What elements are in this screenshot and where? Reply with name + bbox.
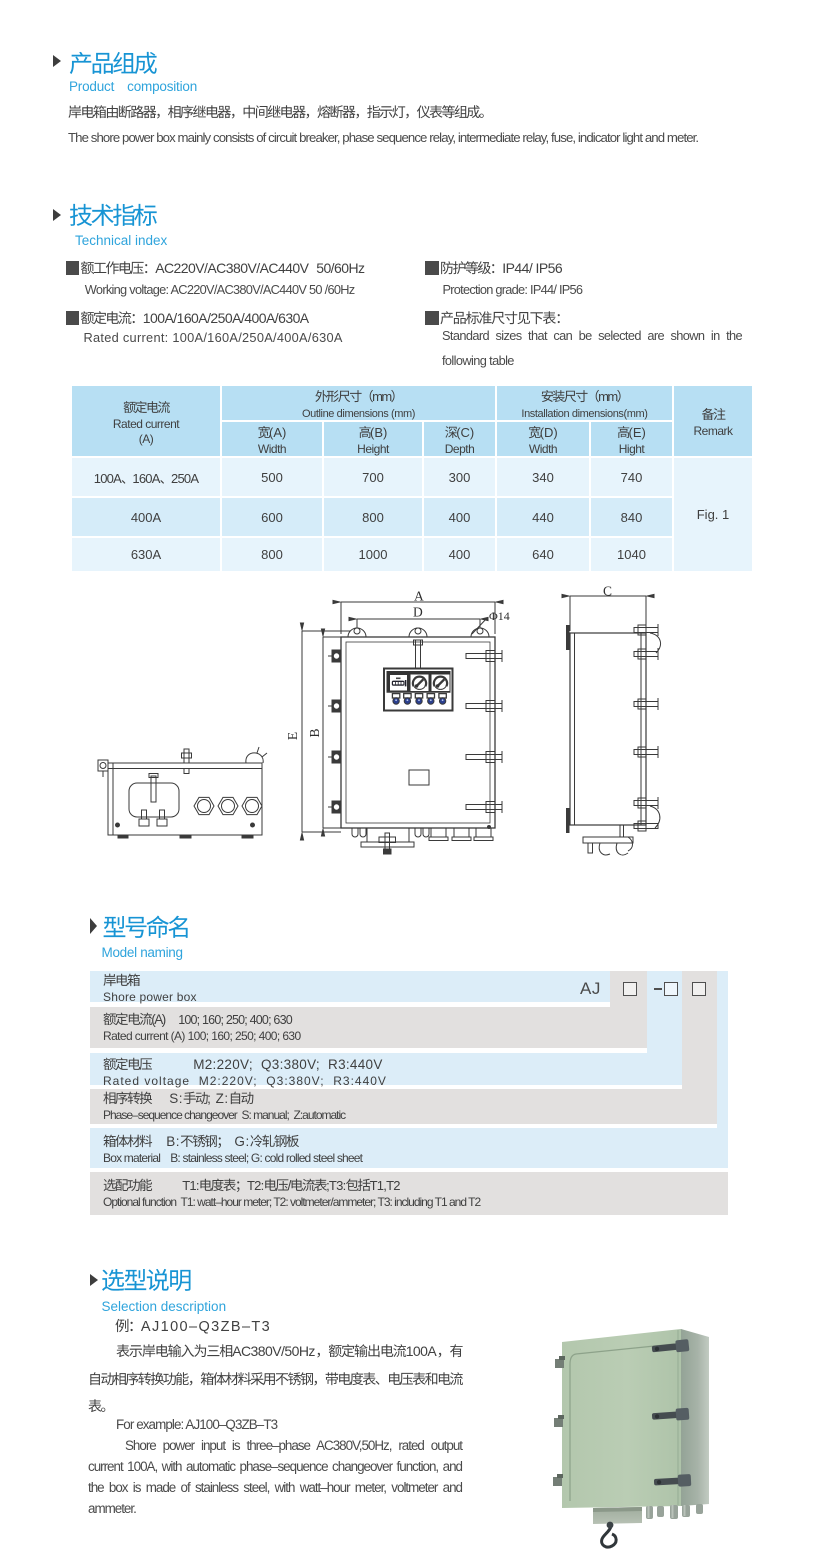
svg-text:D: D — [413, 605, 423, 620]
svg-text:C: C — [603, 584, 612, 599]
svg-text:B: B — [307, 728, 322, 737]
svg-text:Φ14: Φ14 — [489, 609, 510, 623]
svg-text:E: E — [285, 732, 300, 740]
svg-text:A: A — [414, 589, 424, 604]
